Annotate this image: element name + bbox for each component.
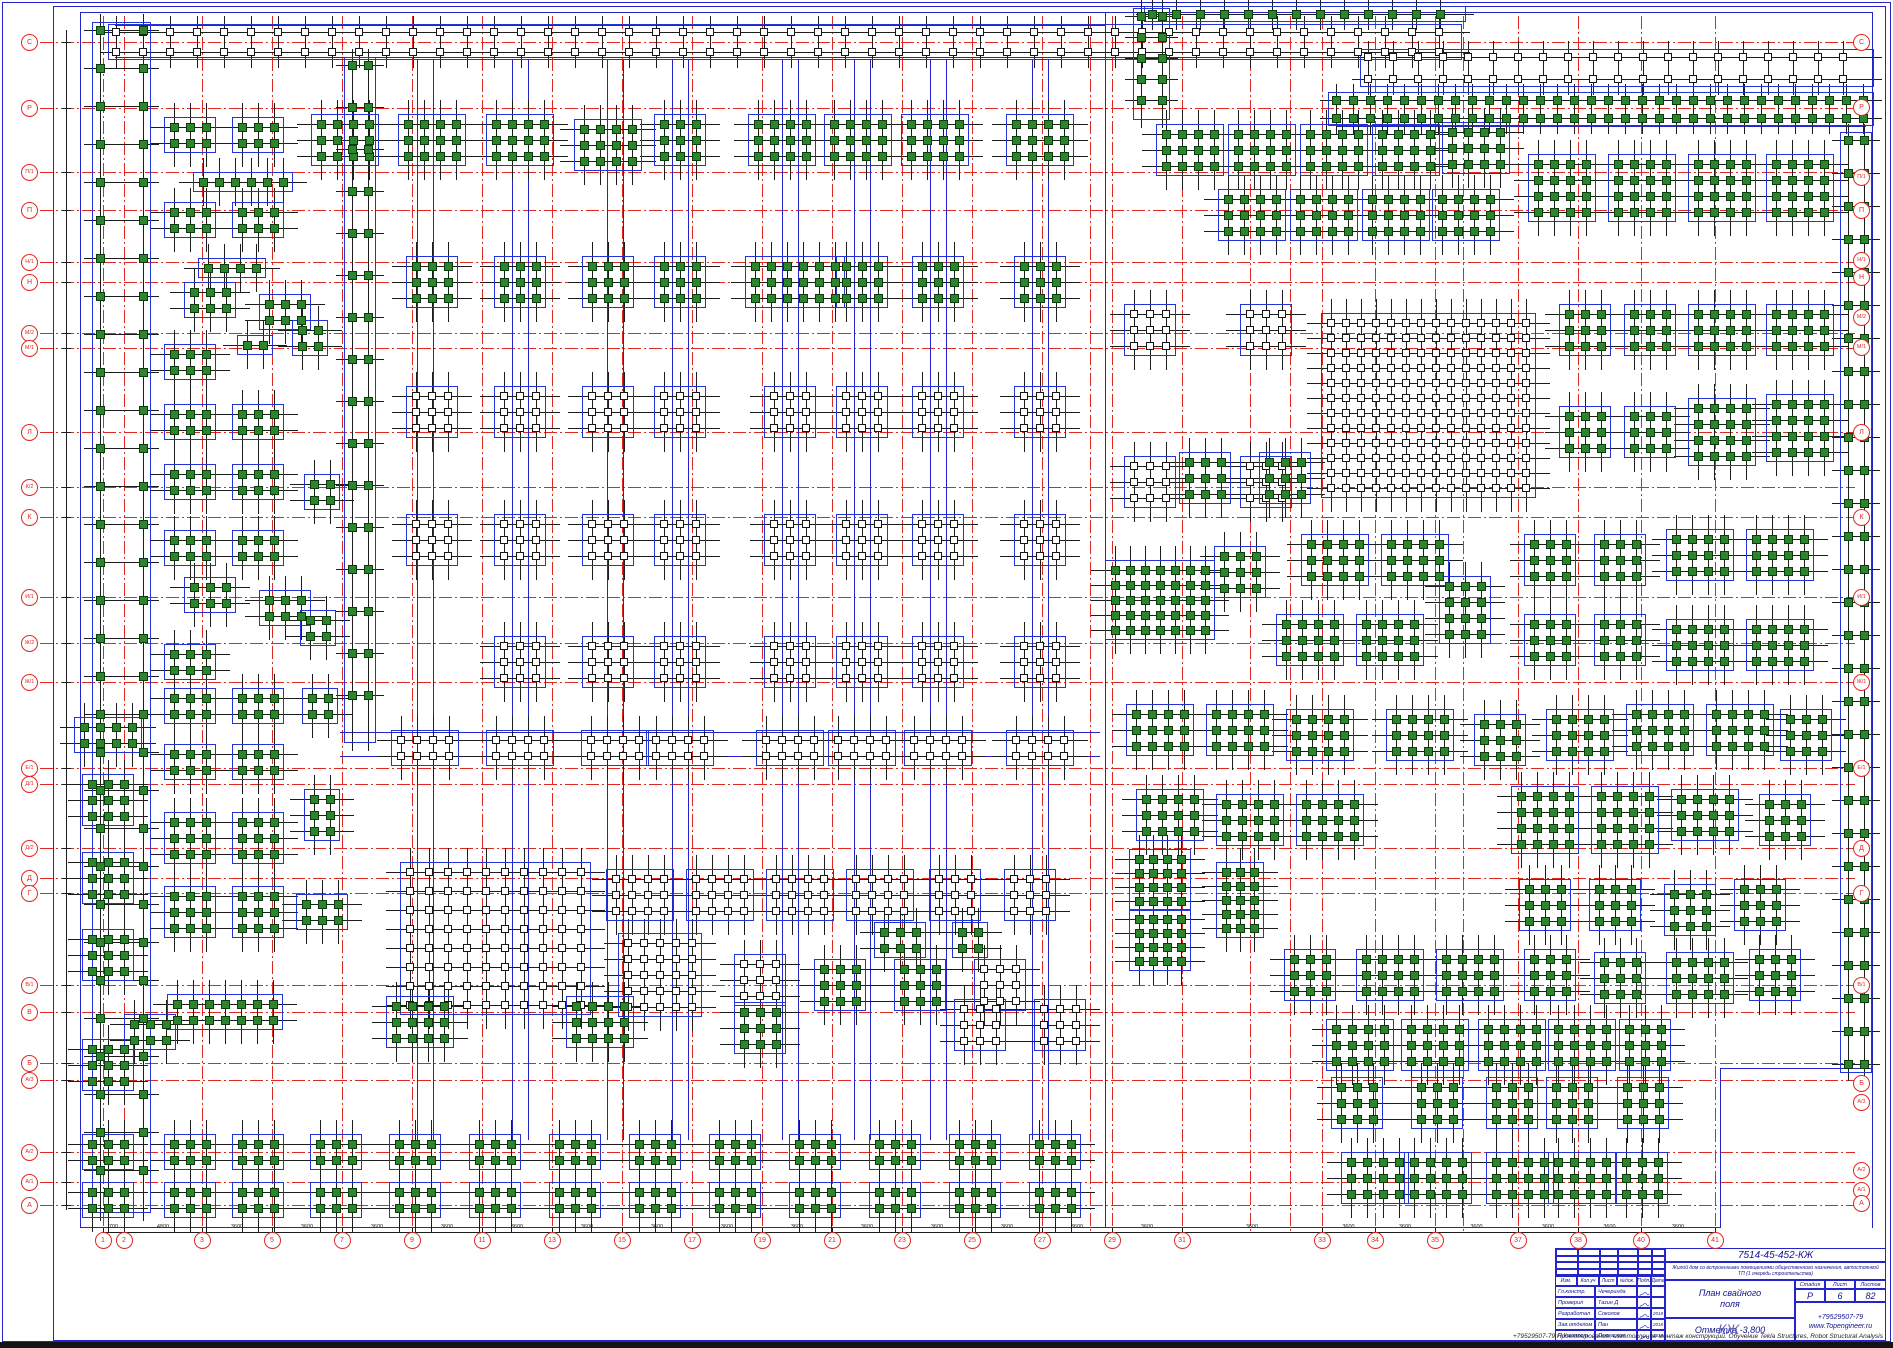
pile — [1597, 792, 1606, 801]
pile — [1632, 556, 1641, 565]
pile — [348, 439, 357, 448]
pile — [1012, 152, 1021, 161]
pile — [1623, 1083, 1632, 1092]
pile — [238, 818, 247, 827]
pile — [1327, 334, 1335, 342]
pile — [1568, 1083, 1577, 1092]
pile — [1772, 416, 1781, 425]
pile — [1756, 901, 1765, 910]
pile — [170, 892, 179, 901]
pile — [1322, 130, 1331, 139]
pile — [858, 424, 866, 432]
pile — [1525, 901, 1534, 910]
pile-cap-outline — [745, 256, 845, 308]
pile — [1630, 310, 1639, 319]
pile — [1565, 342, 1574, 351]
pile — [1312, 227, 1321, 236]
pile — [316, 1140, 325, 1149]
pile — [1423, 1041, 1432, 1050]
pile — [520, 868, 528, 876]
pile — [1246, 342, 1254, 350]
pile — [1395, 1174, 1404, 1183]
pile — [1369, 1083, 1378, 1092]
pile — [1347, 1174, 1356, 1183]
pile — [1621, 114, 1630, 123]
pile — [802, 408, 810, 416]
pile — [1327, 394, 1335, 402]
axis-bubble-right-И/1: И/1 — [1853, 589, 1870, 606]
pile — [1639, 1083, 1648, 1092]
pile — [1432, 484, 1440, 492]
pile — [1611, 885, 1620, 894]
pile — [842, 392, 850, 400]
pile — [624, 955, 632, 963]
pile — [1629, 792, 1638, 801]
pile — [1260, 742, 1269, 751]
pile — [1148, 726, 1157, 735]
pile — [1327, 454, 1335, 462]
pile — [1546, 636, 1555, 645]
pile — [875, 1156, 884, 1165]
pile — [1210, 130, 1219, 139]
pile — [1171, 566, 1180, 575]
pile — [1228, 742, 1237, 751]
pile — [186, 552, 195, 561]
pile — [878, 120, 887, 129]
pile — [912, 928, 921, 937]
pile — [1688, 551, 1697, 560]
pile — [1772, 192, 1781, 201]
pile — [1686, 922, 1695, 931]
pile — [1614, 75, 1622, 83]
pile — [1272, 211, 1281, 220]
pile — [1522, 334, 1530, 342]
pile — [1744, 742, 1753, 751]
role-label-cell: Гл.констр. — [1555, 1286, 1595, 1297]
pile — [1524, 1099, 1533, 1108]
pile — [1368, 195, 1377, 204]
pile — [1710, 310, 1719, 319]
pile — [310, 496, 319, 505]
pile — [858, 552, 866, 560]
pile — [842, 262, 851, 271]
pile — [1417, 1083, 1426, 1092]
pile — [411, 1204, 420, 1213]
pile — [1196, 10, 1205, 19]
pile — [96, 596, 105, 605]
pile — [596, 141, 605, 150]
pile — [1308, 747, 1317, 756]
pile — [1357, 349, 1365, 357]
title-block-empty-grid — [1555, 1248, 1665, 1276]
pile — [186, 908, 195, 917]
pile — [656, 955, 664, 963]
pile — [238, 1140, 247, 1149]
pile — [1180, 742, 1189, 751]
pile — [1600, 572, 1609, 581]
pile — [1804, 176, 1813, 185]
axis-bubble-Д/1: Д/1 — [21, 776, 38, 793]
pile — [1512, 736, 1521, 745]
pile — [1222, 896, 1231, 905]
pile — [858, 278, 867, 287]
pile — [1595, 901, 1604, 910]
pile — [88, 1188, 97, 1197]
pile — [706, 28, 714, 36]
pile — [1433, 1099, 1442, 1108]
pile — [1135, 943, 1144, 952]
pile — [1600, 620, 1609, 629]
pile — [1662, 176, 1671, 185]
pile — [1111, 581, 1120, 590]
pile — [139, 710, 148, 719]
pile — [1387, 379, 1395, 387]
pile — [756, 976, 764, 984]
pile — [1149, 883, 1158, 892]
pile — [620, 294, 629, 303]
pile — [672, 987, 680, 995]
pile — [1844, 400, 1853, 409]
axis-bubble-right-П: П — [1853, 202, 1870, 219]
pile — [1490, 987, 1499, 996]
pile — [571, 1156, 580, 1165]
pile — [1201, 490, 1210, 499]
pile — [310, 795, 319, 804]
pile — [516, 674, 524, 682]
pile — [348, 229, 357, 238]
pile — [612, 907, 620, 915]
pile — [1282, 620, 1291, 629]
pile — [424, 1034, 433, 1043]
pile — [672, 939, 680, 947]
axis-bubble-1: 1 — [95, 1232, 112, 1249]
pile — [733, 28, 741, 36]
axis-bubble-40: 40 — [1633, 1232, 1650, 1249]
role-date-cell — [1651, 1286, 1665, 1297]
pile — [1146, 494, 1154, 502]
pile — [1616, 990, 1625, 999]
pile — [1820, 208, 1829, 217]
pile — [1357, 334, 1365, 342]
dimension-tick — [62, 1063, 71, 1064]
pile — [612, 125, 621, 134]
pile — [588, 262, 597, 271]
pile — [1020, 278, 1029, 287]
pile — [976, 1037, 984, 1045]
pile — [1742, 160, 1751, 169]
pile — [1432, 469, 1440, 477]
pile — [254, 818, 263, 827]
pile — [1784, 551, 1793, 560]
pile — [572, 1002, 581, 1011]
axis-bubble-right-М/1: М/1 — [1853, 339, 1870, 356]
pile — [1130, 310, 1138, 318]
pile — [508, 752, 516, 760]
pile — [588, 294, 597, 303]
pile — [1149, 929, 1158, 938]
pile — [934, 294, 943, 303]
pile — [620, 262, 629, 271]
pile — [1641, 1025, 1650, 1034]
pile — [1791, 96, 1800, 105]
pile — [1562, 987, 1571, 996]
pile — [692, 152, 701, 161]
pile — [842, 552, 850, 560]
pile — [1844, 994, 1853, 1003]
pile — [1402, 409, 1410, 417]
pile — [1222, 832, 1231, 841]
pile — [202, 1204, 211, 1213]
pile — [1044, 752, 1052, 760]
pile — [1562, 971, 1571, 980]
pile — [186, 536, 195, 545]
pile — [1322, 162, 1331, 171]
pile — [1228, 710, 1237, 719]
pile — [672, 1003, 680, 1011]
pile — [1222, 882, 1231, 891]
pile — [532, 392, 540, 400]
axis-bubble-Е/1: Е/1 — [21, 760, 38, 777]
pile — [1689, 114, 1698, 123]
pile — [1562, 540, 1571, 549]
pile — [202, 766, 211, 775]
pile — [162, 1036, 171, 1045]
pile — [279, 178, 288, 187]
pile — [1416, 195, 1425, 204]
pile — [1111, 626, 1120, 635]
pile — [1686, 890, 1695, 899]
pile — [1582, 176, 1591, 185]
pile — [420, 136, 429, 145]
pile — [1632, 540, 1641, 549]
pile — [1234, 146, 1243, 155]
pile — [1323, 556, 1332, 565]
pile — [1597, 326, 1606, 335]
pile — [1296, 195, 1305, 204]
pile — [772, 960, 780, 968]
pile — [270, 924, 279, 933]
pile — [1266, 162, 1275, 171]
pile — [253, 1016, 262, 1025]
pile — [811, 1188, 820, 1197]
pile — [1600, 731, 1609, 740]
axis-bubble-П: П — [21, 202, 38, 219]
pile — [588, 552, 596, 560]
building-wall-line — [80, 12, 81, 1228]
pile — [858, 262, 867, 271]
pile — [1448, 128, 1457, 137]
pile — [820, 875, 828, 883]
pile — [1447, 439, 1455, 447]
pile — [445, 752, 453, 760]
pile — [1012, 997, 1020, 1005]
pile — [364, 271, 373, 280]
pile — [1449, 1115, 1458, 1124]
pile — [1552, 715, 1561, 724]
pile — [1051, 1204, 1060, 1213]
pile — [1570, 1025, 1579, 1034]
pile — [644, 875, 652, 883]
pile — [1364, 1025, 1373, 1034]
pile — [1219, 48, 1227, 56]
pile — [934, 674, 942, 682]
dimension-tick — [62, 282, 71, 283]
pile — [1771, 971, 1780, 980]
pile — [1844, 796, 1853, 805]
axis-bubble-А/2: А/2 — [21, 1144, 38, 1161]
pile — [950, 262, 959, 271]
pile — [516, 520, 524, 528]
pile — [270, 552, 279, 561]
pile — [715, 1140, 724, 1149]
pile — [302, 916, 311, 925]
pile — [1844, 565, 1853, 574]
axis-bubble-right-А/2: А/2 — [1853, 1162, 1870, 1179]
pile — [166, 28, 174, 36]
pile — [652, 752, 660, 760]
pile — [620, 1034, 629, 1043]
pile — [270, 139, 279, 148]
pile — [1246, 326, 1254, 334]
pile — [1339, 540, 1348, 549]
pile — [1496, 752, 1505, 761]
pile — [1694, 310, 1703, 319]
pile — [1111, 48, 1119, 56]
pile — [1337, 1099, 1346, 1108]
pile — [1860, 664, 1869, 673]
pile — [120, 1061, 129, 1070]
pile — [270, 123, 279, 132]
pile — [1484, 1057, 1493, 1066]
pile — [444, 944, 452, 952]
pile — [348, 313, 357, 322]
pile — [1586, 1025, 1595, 1034]
pile — [1402, 439, 1410, 447]
pile — [348, 565, 357, 574]
role-date-cell: 2018 — [1651, 1319, 1665, 1330]
pile — [520, 982, 528, 990]
pile — [1416, 211, 1425, 220]
pile — [1616, 540, 1625, 549]
pile — [878, 152, 887, 161]
pile — [1135, 897, 1144, 906]
pile — [772, 875, 780, 883]
pile — [1462, 424, 1470, 432]
pile — [1480, 736, 1489, 745]
pile — [1600, 556, 1609, 565]
pile — [1704, 990, 1713, 999]
pile — [539, 868, 547, 876]
pile — [202, 750, 211, 759]
pile — [269, 1016, 278, 1025]
pile — [270, 818, 279, 827]
pile — [1616, 572, 1625, 581]
pile — [827, 1156, 836, 1165]
pile — [572, 1034, 581, 1043]
pile — [1630, 444, 1639, 453]
pile — [1417, 334, 1425, 342]
pile — [524, 120, 533, 129]
pile — [516, 642, 524, 650]
pile — [238, 766, 247, 775]
pile — [1137, 75, 1146, 84]
pile — [770, 136, 779, 145]
pile — [1327, 48, 1335, 56]
pile — [834, 752, 842, 760]
pile — [1539, 75, 1547, 83]
pile — [1597, 824, 1606, 833]
pile — [767, 294, 776, 303]
pile — [786, 658, 794, 666]
pile — [1645, 824, 1654, 833]
pile — [425, 982, 433, 990]
pile — [1282, 652, 1291, 661]
pile — [1340, 731, 1349, 740]
pile — [1364, 1041, 1373, 1050]
pile — [1442, 1174, 1451, 1183]
pile — [1282, 146, 1291, 155]
pile — [1662, 192, 1671, 201]
pile — [992, 1037, 1000, 1045]
pile — [907, 1204, 916, 1213]
pile — [1366, 96, 1375, 105]
pile — [120, 1077, 129, 1086]
pile — [971, 1140, 980, 1149]
pile — [1630, 192, 1639, 201]
pile — [500, 424, 508, 432]
pile — [128, 723, 137, 732]
pile — [1613, 840, 1622, 849]
pile — [1334, 800, 1343, 809]
pile — [1565, 428, 1574, 437]
pile — [186, 366, 195, 375]
pile — [1752, 551, 1761, 560]
pile — [715, 1188, 724, 1197]
pile — [263, 178, 272, 187]
pile — [139, 216, 148, 225]
axis-bubble-34: 34 — [1367, 1232, 1384, 1249]
pile — [1212, 710, 1221, 719]
pile — [896, 944, 905, 953]
pile — [1524, 1115, 1533, 1124]
pile — [1645, 792, 1654, 801]
pile — [980, 997, 988, 1005]
pile — [1324, 715, 1333, 724]
pile — [900, 981, 909, 990]
pile — [1342, 334, 1350, 342]
pile — [620, 552, 628, 560]
pile — [270, 208, 279, 217]
pile — [1278, 342, 1286, 350]
pile — [740, 1008, 749, 1017]
pile — [955, 1140, 964, 1149]
pile — [409, 48, 417, 56]
pile — [1201, 611, 1210, 620]
pile — [1621, 96, 1630, 105]
pile — [237, 1000, 246, 1009]
pile — [1362, 636, 1371, 645]
axis-bubble-right-А/3: А/3 — [1853, 1094, 1870, 1111]
pile — [1379, 1174, 1388, 1183]
pile — [412, 262, 421, 271]
pile — [874, 424, 882, 432]
pile — [1458, 1174, 1467, 1183]
pile — [1664, 742, 1673, 751]
pile — [772, 907, 780, 915]
pile — [1439, 1057, 1448, 1066]
pile — [756, 960, 764, 968]
pile — [778, 736, 786, 744]
